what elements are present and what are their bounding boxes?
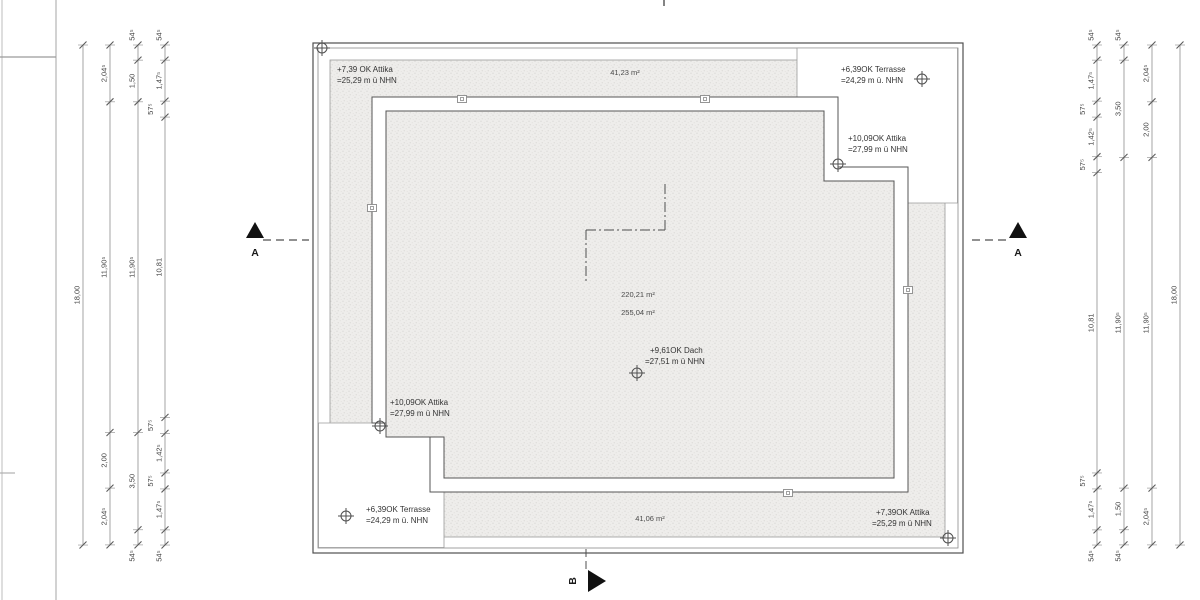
dim-chain-left-2: 54⁵1,5011,90⁵3,5054⁵: [128, 29, 144, 561]
dim-chain-right-0: 54⁵1,47⁵57⁵1,42⁵57⁵10,8157⁵1,47⁵54⁵: [1078, 29, 1102, 561]
dim-label: 54⁵: [1114, 550, 1123, 561]
dim-chain-right-1: 54⁵3,5011,90⁵1,5054⁵: [1114, 29, 1130, 561]
dim-label: 1,42⁵: [155, 444, 164, 462]
dim-chain-left-3: 54⁵1,47⁵57⁵10,8157⁵1,42⁵57⁵1,47⁵54⁵: [146, 29, 170, 561]
annotation-line: +7,39OK Attika: [876, 508, 930, 517]
drain-symbol: [701, 96, 710, 103]
dim-label: 2,04⁵: [1142, 65, 1151, 83]
dim-label: 57⁵: [146, 103, 155, 114]
dim-label: 57⁵: [1078, 475, 1087, 486]
dim-label: 54⁵: [1087, 550, 1096, 561]
dim-label: 2,04⁵: [1142, 508, 1151, 526]
dim-label: 54⁵: [155, 29, 164, 40]
dim-label: 18,00: [73, 286, 82, 305]
section-marker-a-right: A: [972, 222, 1027, 259]
dim-label: 54⁵: [128, 550, 137, 561]
dim-label: 11,90⁵: [100, 257, 109, 278]
dim-label: 18,00: [1170, 286, 1179, 305]
drain-symbol: [784, 490, 793, 497]
roof-plan-drawing: A A B +7,39 OK Attika =25,29 m ü NHN +6,…: [0, 0, 1200, 600]
annotation-line: +10,09OK Attika: [848, 134, 907, 143]
section-arrow-up-icon: [1009, 222, 1027, 238]
dim-label: 11,90⁵: [1114, 312, 1123, 333]
annotation-line: =27,51 m ü NHN: [645, 357, 705, 366]
annotation-line: =24,29 m ü. NHN: [841, 76, 903, 85]
annotation-line: =24,29 m ü. NHN: [366, 516, 428, 525]
section-marker-a-left: A: [246, 222, 309, 259]
dim-label: 54⁵: [128, 29, 137, 40]
roof-plan-svg: A A B +7,39 OK Attika =25,29 m ü NHN +6,…: [0, 0, 1200, 600]
section-label-a-right: A: [1014, 247, 1022, 259]
terrace-cutout-bottom-left: [319, 423, 445, 548]
annotation-line: +6,39OK Terrasse: [366, 505, 431, 514]
section-arrow-right-icon: [588, 570, 606, 592]
dim-chain-right-2: 2,04⁵2,0011,90⁵2,04⁵: [1142, 42, 1158, 549]
annotation-line: =25,29 m ü NHN: [872, 519, 932, 528]
adjacent-sheet-edge: [0, 0, 56, 600]
section-label-a-left: A: [251, 247, 259, 259]
dim-label: 11,90⁵: [1142, 312, 1151, 333]
drain-symbol: [458, 96, 467, 103]
annotation-line: +6,39OK Terrasse: [841, 65, 906, 74]
annotation-line: +10,09OK Attika: [390, 398, 449, 407]
drain-symbol: [368, 205, 377, 212]
dim-label: 1,50: [128, 74, 137, 89]
dim-label: 3,50: [128, 474, 137, 489]
area-label-center-lower: 255,04 m²: [621, 308, 655, 317]
area-label-bottom: 41,06 m²: [635, 514, 665, 523]
dim-label: 57⁵: [146, 420, 155, 431]
annotation-line: +9,61OK Dach: [650, 346, 703, 355]
dim-label: 1,47⁵: [155, 72, 164, 90]
annotation-line: =27,99 m ü NHN: [390, 409, 450, 418]
dim-label: 2,00: [1142, 122, 1151, 137]
dim-chain-left-1: 2,04⁵11,90⁵2,002,04⁵: [100, 42, 116, 549]
dim-label: 11,90⁵: [128, 257, 137, 278]
annotation-line: =27,99 m ü NHN: [848, 145, 908, 154]
dim-label: 1,47⁵: [1087, 72, 1096, 90]
dim-chain-left-0: 18,00: [73, 42, 89, 549]
annotation-line: +7,39 OK Attika: [337, 65, 393, 74]
dim-label: 2,00: [100, 453, 109, 468]
dim-label: 10,81: [155, 258, 164, 277]
dim-label: 1,47⁵: [1087, 501, 1096, 519]
dim-label: 2,04⁵: [100, 508, 109, 526]
dim-label: 10,81: [1087, 313, 1096, 332]
dim-label: 57⁵: [146, 475, 155, 486]
dim-label: 1,50: [1114, 502, 1123, 517]
dim-label: 1,42⁵: [1087, 128, 1096, 146]
section-label-b: B: [567, 577, 579, 585]
dim-label: 2,04⁵: [100, 65, 109, 83]
dim-label: 3,50: [1114, 101, 1123, 116]
area-label-center-upper: 220,21 m²: [621, 290, 655, 299]
dim-label: 57⁵: [1078, 159, 1087, 170]
annotation-line: =25,29 m ü NHN: [337, 76, 397, 85]
dim-label: 54⁵: [155, 550, 164, 561]
drain-symbol: [904, 287, 913, 294]
dim-label: 1,47⁵: [155, 501, 164, 519]
area-label-top: 41,23 m²: [610, 68, 640, 77]
dim-label: 57⁵: [1078, 103, 1087, 114]
section-marker-b-bottom: B: [567, 570, 606, 592]
dim-chain-right-3: 18,00: [1170, 42, 1186, 549]
dim-label: 54⁵: [1087, 29, 1096, 40]
section-arrow-up-icon: [246, 222, 264, 238]
dim-label: 54⁵: [1114, 29, 1123, 40]
